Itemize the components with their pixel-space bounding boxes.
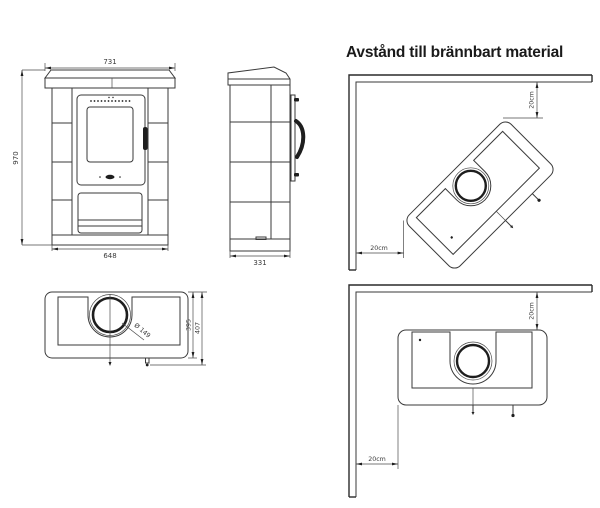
dim-wall-top-label: 20cm — [529, 91, 536, 109]
corner-placement-parallel-diagram: 20cm 20cm — [340, 276, 598, 506]
front-handle-peg — [472, 405, 475, 415]
dim-wall-left-label: 20cm — [368, 456, 386, 463]
dim-depth-total-label: 407 — [195, 322, 202, 334]
dim-flue-diameter: Ø 149 — [122, 321, 152, 340]
stove-body-side — [230, 85, 290, 239]
dim-top-width: 731 — [45, 58, 175, 71]
walls — [349, 285, 592, 497]
front-knob-peg — [531, 192, 541, 202]
dim-top-width-label: 731 — [103, 58, 116, 66]
dim-depth-total: 407 — [150, 292, 206, 365]
top-view-drawing: Ø 149 395 407 — [40, 278, 218, 378]
top-view-inner-panel — [58, 297, 180, 345]
stove-top-cap-side — [228, 67, 290, 85]
dim-wall-left-label: 20cm — [370, 245, 388, 252]
top-view-outline — [45, 292, 188, 358]
dim-wall-top-label: 20cm — [529, 302, 536, 320]
front-view-drawing: 731 970 — [8, 50, 213, 265]
door-handle — [143, 127, 148, 150]
fire-door — [77, 95, 148, 185]
tile-column-left — [52, 88, 72, 235]
dim-flue-diameter-label: Ø 149 — [132, 321, 152, 339]
walls — [349, 75, 592, 270]
corner-placement-diagonal-diagram: 20cm 20cm — [340, 66, 598, 276]
stove-base — [52, 235, 168, 245]
stove-top-cap — [45, 70, 175, 88]
section-title: Avstånd till brännbart material — [346, 44, 598, 62]
door-handle-side — [291, 95, 303, 181]
vent-holes — [90, 97, 130, 102]
tile-column-right — [148, 88, 168, 235]
stove-installation-diagram: 731 970 — [0, 0, 600, 508]
front-knob — [146, 358, 150, 366]
dim-depth-label: 331 — [253, 259, 266, 267]
dim-wall-left: 20cm — [356, 405, 398, 469]
stove-base-side — [230, 237, 290, 251]
front-handle-peg — [504, 219, 514, 229]
dim-bottom-width-label: 648 — [103, 252, 116, 260]
stove-top-view-straight — [398, 330, 547, 417]
dim-bottom-width: 648 — [52, 245, 168, 260]
dim-wall-top: 20cm — [503, 82, 543, 118]
air-control — [99, 175, 121, 179]
ash-drawer — [78, 193, 142, 233]
dim-depth: 331 — [230, 251, 290, 267]
front-knob-peg — [511, 405, 514, 417]
dim-wall-left: 20cm — [356, 221, 404, 259]
stove-top-view-rotated — [404, 119, 565, 280]
door-window — [87, 107, 133, 162]
side-view-drawing: 331 — [212, 55, 322, 273]
dim-depth-body-label: 395 — [186, 319, 193, 331]
dim-height: 970 — [12, 70, 52, 245]
center-line-foot — [109, 362, 112, 366]
dim-height-label: 970 — [12, 151, 20, 164]
dim-wall-top: 20cm — [529, 292, 539, 330]
